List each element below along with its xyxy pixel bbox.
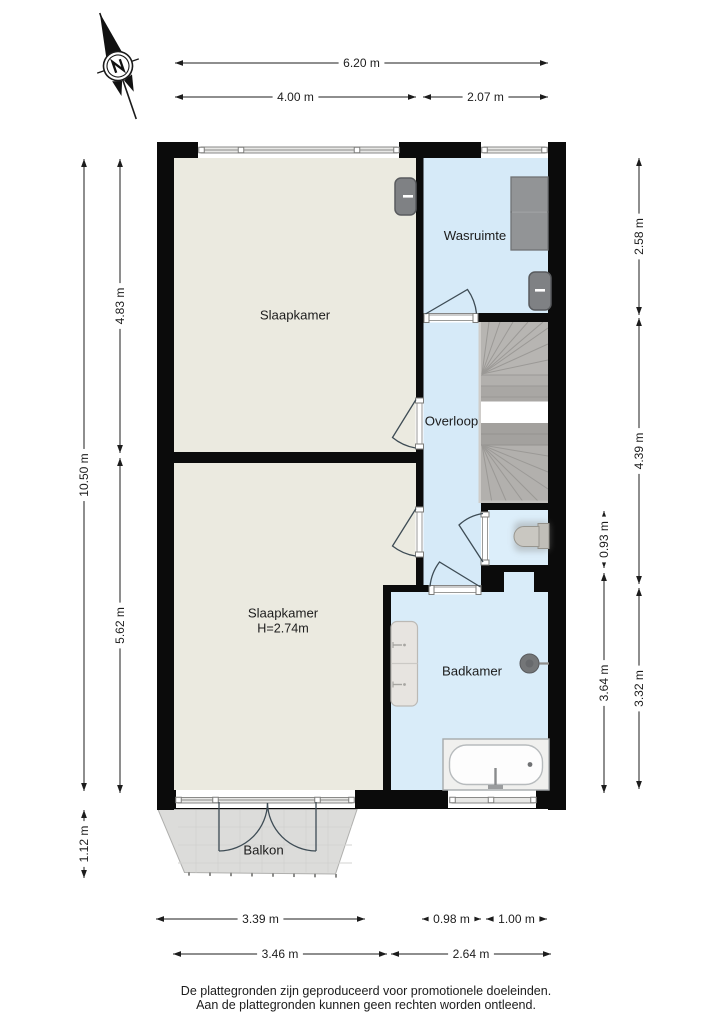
svg-text:2.64 m: 2.64 m: [453, 947, 490, 961]
svg-text:0.98 m: 0.98 m: [433, 912, 470, 926]
svg-text:H=2.74m: H=2.74m: [257, 622, 308, 636]
svg-text:3.64 m: 3.64 m: [597, 665, 611, 702]
svg-text:0.93 m: 0.93 m: [597, 521, 611, 558]
svg-text:3.39 m: 3.39 m: [242, 912, 279, 926]
svg-text:5.62 m: 5.62 m: [113, 607, 127, 644]
svg-text:Wasruimte: Wasruimte: [444, 228, 507, 243]
svg-text:4.00 m: 4.00 m: [277, 90, 314, 104]
svg-text:6.20 m: 6.20 m: [343, 56, 380, 70]
svg-text:3.32 m: 3.32 m: [632, 670, 646, 707]
svg-text:Balkon: Balkon: [243, 843, 283, 858]
svg-text:Badkamer: Badkamer: [442, 664, 503, 679]
svg-text:1.00 m: 1.00 m: [498, 912, 535, 926]
svg-text:Slaapkamer: Slaapkamer: [260, 308, 331, 323]
svg-text:Overloop: Overloop: [425, 414, 479, 429]
svg-text:Aan de plattegronden kunnen ge: Aan de plattegronden kunnen geen rechten…: [196, 998, 536, 1012]
svg-text:De plattegronden zijn geproduc: De plattegronden zijn geproduceerd voor …: [181, 984, 551, 998]
svg-text:Slaapkamer: Slaapkamer: [248, 606, 319, 621]
svg-text:2.58 m: 2.58 m: [632, 218, 646, 255]
svg-text:3.46 m: 3.46 m: [262, 947, 299, 961]
svg-text:2.07 m: 2.07 m: [467, 90, 504, 104]
svg-text:1.12 m: 1.12 m: [77, 826, 91, 863]
svg-text:4.39 m: 4.39 m: [632, 433, 646, 470]
svg-text:4.83 m: 4.83 m: [113, 288, 127, 325]
svg-text:10.50 m: 10.50 m: [77, 453, 91, 496]
